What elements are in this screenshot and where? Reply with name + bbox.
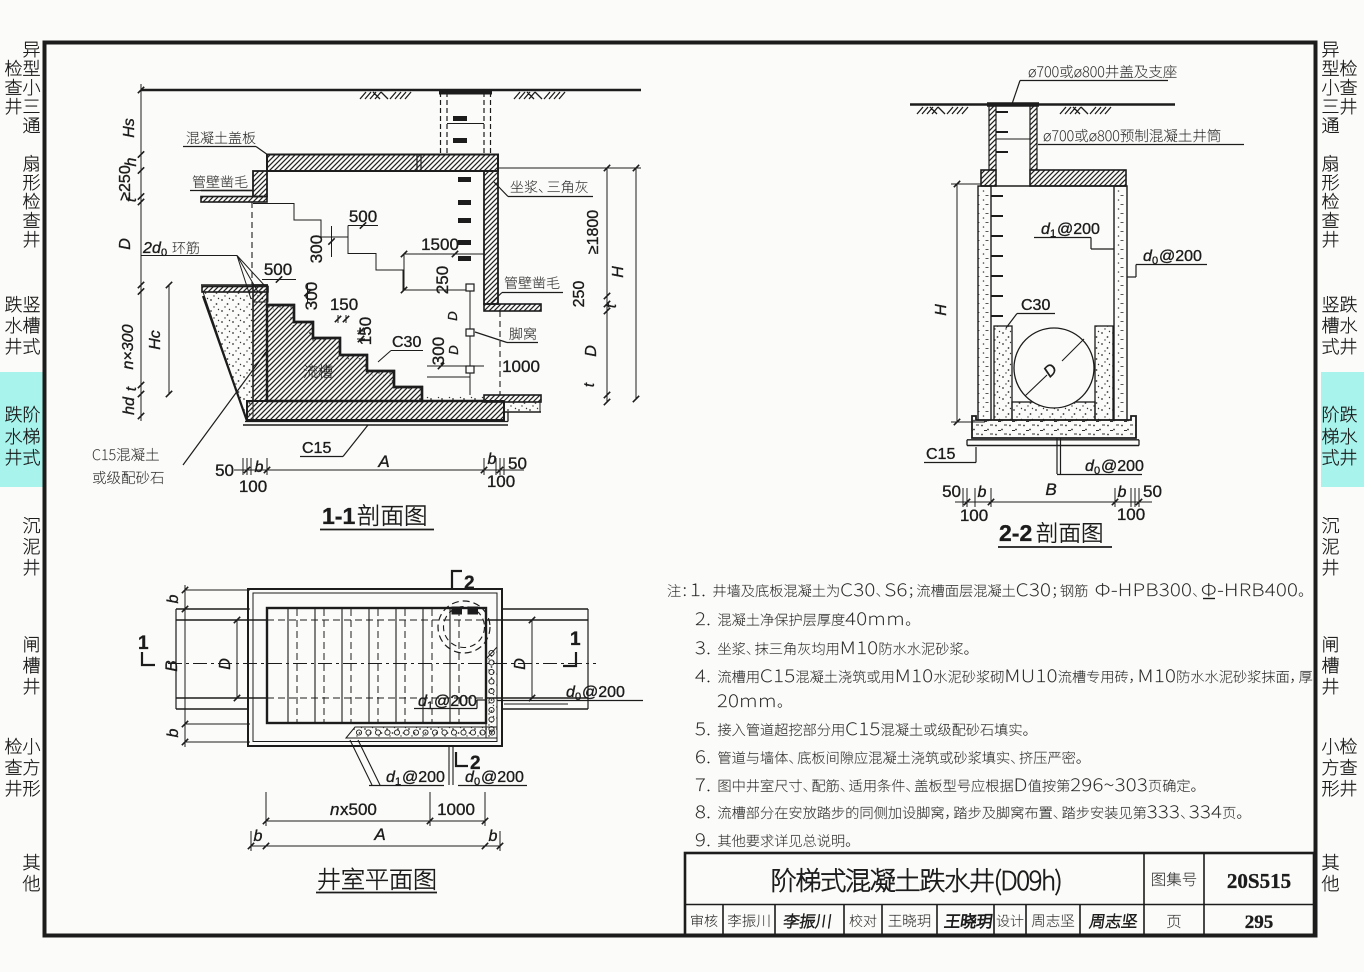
svg-text:D: D [583, 345, 600, 357]
svg-text:100: 100 [487, 472, 515, 491]
svg-text:C15: C15 [302, 440, 331, 457]
svg-text:50: 50 [1143, 482, 1162, 501]
svg-text:B: B [1045, 480, 1056, 499]
svg-text:B: B [162, 660, 181, 671]
svg-text:D: D [512, 658, 529, 670]
svg-text:300: 300 [307, 235, 326, 263]
svg-text:A: A [377, 452, 389, 471]
svg-text:b: b [978, 484, 987, 501]
svg-text:A: A [373, 825, 385, 844]
svg-text:500: 500 [349, 207, 377, 226]
svg-text:C30: C30 [1021, 297, 1050, 314]
svg-text:b: b [1118, 484, 1127, 501]
svg-text:@200: @200 [1057, 221, 1100, 238]
svg-text:20S515: 20S515 [1227, 869, 1291, 893]
svg-text:2: 2 [142, 240, 152, 257]
svg-text:n×300: n×300 [120, 324, 137, 369]
svg-text:150: 150 [330, 295, 358, 314]
svg-text:@200: @200 [1101, 458, 1144, 475]
svg-text:D: D [117, 238, 134, 250]
svg-text:0: 0 [1152, 255, 1158, 267]
svg-text:@200: @200 [481, 769, 524, 786]
svg-text:1: 1 [395, 776, 401, 788]
svg-text:@200: @200 [434, 693, 477, 710]
svg-text:b: b [255, 459, 264, 476]
svg-text:0: 0 [474, 776, 480, 788]
svg-text:Hs: Hs [121, 118, 138, 138]
svg-text:≥250: ≥250 [117, 165, 134, 201]
svg-text:2: 2 [464, 573, 475, 594]
svg-text:295: 295 [1245, 912, 1274, 933]
svg-text:h: h [123, 157, 140, 166]
svg-text:300: 300 [429, 337, 448, 365]
svg-text:2-2: 2-2 [999, 520, 1032, 546]
svg-text:50: 50 [215, 461, 234, 480]
svg-text:hd: hd [121, 396, 138, 415]
svg-text:C15: C15 [926, 446, 955, 463]
svg-text:b: b [488, 451, 497, 468]
svg-text:D: D [445, 311, 460, 320]
svg-text:50: 50 [942, 482, 961, 501]
svg-text:H: H [933, 304, 950, 316]
svg-text:1000: 1000 [437, 800, 475, 819]
svg-text:@200: @200 [582, 684, 625, 701]
svg-text:0: 0 [575, 691, 581, 703]
svg-text:1: 1 [1050, 228, 1056, 240]
svg-text:x500: x500 [340, 800, 377, 819]
svg-text:1500: 1500 [421, 235, 459, 254]
svg-text:C30: C30 [392, 334, 421, 351]
svg-text:0: 0 [161, 247, 167, 259]
svg-text:100: 100 [239, 477, 267, 496]
svg-text:1-1: 1-1 [322, 503, 355, 529]
svg-text:50: 50 [508, 454, 527, 473]
svg-text:≥1800: ≥1800 [585, 210, 602, 254]
svg-text:b: b [254, 828, 263, 845]
svg-text:@200: @200 [402, 769, 445, 786]
svg-text:b: b [165, 594, 182, 603]
svg-text:b: b [489, 828, 498, 845]
svg-text:500: 500 [264, 260, 292, 279]
svg-text:Hc: Hc [147, 330, 164, 350]
svg-text:100: 100 [1117, 505, 1145, 524]
svg-text:1000: 1000 [502, 357, 540, 376]
svg-text:D: D [217, 658, 234, 670]
svg-text:1: 1 [427, 700, 433, 712]
svg-text:@200: @200 [1159, 248, 1202, 265]
svg-text:H: H [610, 266, 627, 278]
svg-text:250: 250 [571, 281, 588, 308]
svg-text:1: 1 [570, 629, 581, 650]
svg-text:n: n [330, 800, 339, 819]
svg-text:100: 100 [960, 506, 988, 525]
svg-text:1: 1 [138, 633, 149, 654]
svg-text:0: 0 [1094, 465, 1100, 477]
svg-text:D: D [446, 345, 461, 354]
svg-text:b: b [165, 728, 182, 737]
